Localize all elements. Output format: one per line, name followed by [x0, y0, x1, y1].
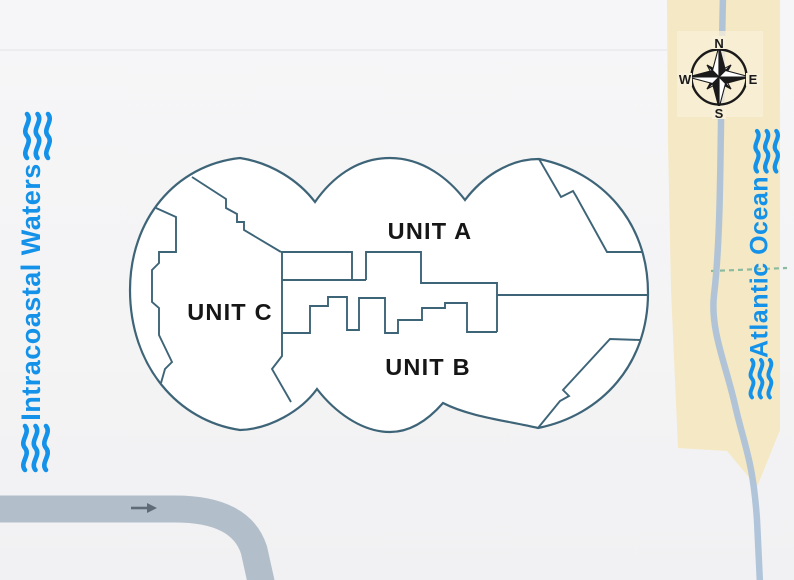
waves-icon [25, 114, 49, 158]
compass-rose-icon: N E S W [677, 31, 763, 121]
atlantic-ocean-label: Atlantic Ocean [746, 176, 774, 358]
compass-south-label: S [715, 106, 724, 121]
waves-icon [23, 426, 47, 470]
compass-west-label: W [679, 72, 692, 87]
intracoastal-waters-label: Intracoastal Waters [16, 163, 46, 421]
site-plan-map: UNIT A UNIT B UNIT C Intracoastal Waters… [0, 0, 794, 580]
building [130, 158, 648, 432]
unit-a-label: UNIT A [388, 218, 473, 244]
main-road [0, 509, 262, 580]
unit-b-label: UNIT B [385, 354, 471, 380]
compass-north-label: N [714, 36, 723, 51]
unit-c-label: UNIT C [187, 299, 273, 325]
site-plan-svg: UNIT A UNIT B UNIT C Intracoastal Waters… [0, 0, 794, 580]
compass-east-label: E [749, 72, 758, 87]
